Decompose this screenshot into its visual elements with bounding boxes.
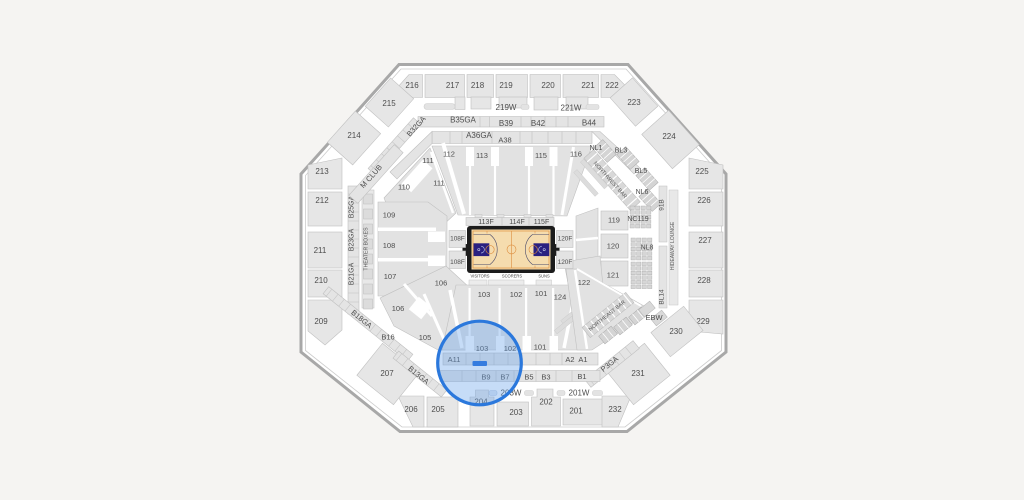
svg-text:108F: 108F: [450, 236, 465, 243]
svg-text:221W: 221W: [561, 104, 582, 113]
svg-text:SCORERS: SCORERS: [502, 273, 523, 278]
svg-text:NL6: NL6: [636, 189, 649, 196]
svg-text:B3: B3: [541, 373, 550, 382]
svg-text:107: 107: [384, 272, 397, 281]
svg-text:206: 206: [404, 405, 418, 414]
svg-text:218: 218: [471, 81, 485, 90]
svg-text:226: 226: [697, 196, 711, 205]
svg-text:111: 111: [422, 156, 433, 165]
svg-text:HIDEAWAY LOUNGE: HIDEAWAY LOUNGE: [670, 221, 676, 270]
svg-text:121: 121: [607, 271, 620, 280]
svg-text:209: 209: [314, 317, 328, 326]
svg-text:115: 115: [535, 151, 547, 160]
svg-text:NL8: NL8: [641, 245, 654, 252]
svg-text:124: 124: [554, 293, 567, 302]
svg-text:B1: B1: [577, 372, 586, 381]
svg-text:224: 224: [662, 132, 676, 141]
svg-text:B44: B44: [582, 119, 597, 128]
svg-text:A38: A38: [498, 136, 511, 145]
svg-text:222: 222: [605, 81, 619, 90]
svg-text:221: 221: [581, 81, 595, 90]
svg-text:B23GA: B23GA: [349, 228, 356, 251]
svg-text:111: 111: [433, 179, 444, 188]
svg-text:213: 213: [315, 167, 329, 176]
svg-text:NC119: NC119: [627, 216, 648, 223]
svg-text:B21GA: B21GA: [349, 262, 356, 285]
svg-text:223: 223: [627, 98, 641, 107]
svg-text:NL1: NL1: [590, 145, 603, 152]
svg-text:EBW: EBW: [645, 313, 663, 322]
svg-text:220: 220: [541, 81, 555, 90]
svg-text:227: 227: [698, 236, 712, 245]
svg-text:101: 101: [535, 289, 548, 298]
svg-text:203: 203: [509, 408, 523, 417]
svg-text:225: 225: [695, 167, 709, 176]
svg-text:108: 108: [383, 241, 396, 250]
svg-text:B42: B42: [531, 119, 546, 128]
svg-text:108F: 108F: [450, 259, 465, 266]
svg-text:113F: 113F: [478, 219, 493, 226]
svg-text:B39: B39: [499, 119, 514, 128]
svg-text:102: 102: [510, 290, 523, 299]
svg-text:106: 106: [435, 279, 448, 288]
svg-text:113: 113: [476, 151, 488, 160]
svg-text:202: 202: [539, 398, 553, 407]
svg-text:BL14: BL14: [659, 289, 666, 305]
svg-text:114F: 114F: [509, 219, 524, 226]
svg-text:219: 219: [499, 81, 513, 90]
svg-text:112: 112: [443, 150, 455, 159]
svg-text:105: 105: [419, 333, 432, 342]
svg-text:BL5: BL5: [635, 168, 648, 175]
svg-text:207: 207: [380, 369, 394, 378]
svg-text:215: 215: [382, 99, 396, 108]
svg-text:B35GA: B35GA: [450, 116, 476, 125]
svg-text:228: 228: [697, 276, 711, 285]
svg-text:B16: B16: [381, 333, 394, 342]
svg-text:110: 110: [398, 183, 410, 192]
svg-text:201: 201: [569, 407, 583, 416]
svg-text:115F: 115F: [534, 219, 549, 226]
svg-text:A2: A2: [565, 355, 574, 364]
svg-text:SUNS: SUNS: [538, 273, 550, 278]
svg-text:VISITORS: VISITORS: [470, 273, 489, 278]
svg-text:A1: A1: [578, 355, 587, 364]
svg-text:122: 122: [578, 278, 591, 287]
svg-text:232: 232: [608, 405, 622, 414]
svg-text:106: 106: [392, 304, 405, 313]
svg-text:205: 205: [431, 405, 445, 414]
svg-text:A36GA: A36GA: [466, 131, 492, 140]
svg-text:211: 211: [314, 246, 327, 255]
svg-text:91B: 91B: [659, 199, 666, 211]
svg-text:119: 119: [608, 216, 620, 225]
svg-text:116: 116: [570, 150, 582, 159]
svg-text:109: 109: [383, 211, 396, 220]
svg-text:231: 231: [631, 369, 645, 378]
svg-text:120F: 120F: [558, 236, 573, 243]
svg-text:230: 230: [669, 327, 683, 336]
svg-text:210: 210: [314, 276, 328, 285]
svg-text:212: 212: [315, 196, 329, 205]
svg-text:214: 214: [347, 131, 361, 140]
svg-text:216: 216: [405, 81, 419, 90]
svg-text:201W: 201W: [569, 389, 590, 398]
svg-text:THEATER BOXES: THEATER BOXES: [364, 227, 370, 271]
svg-text:217: 217: [446, 81, 460, 90]
svg-text:BL3: BL3: [615, 148, 628, 155]
svg-text:120F: 120F: [558, 259, 573, 266]
svg-text:103: 103: [478, 290, 491, 299]
svg-text:219W: 219W: [496, 103, 517, 112]
svg-text:101: 101: [534, 343, 547, 352]
svg-text:120: 120: [607, 242, 620, 251]
svg-text:B5: B5: [524, 373, 533, 382]
